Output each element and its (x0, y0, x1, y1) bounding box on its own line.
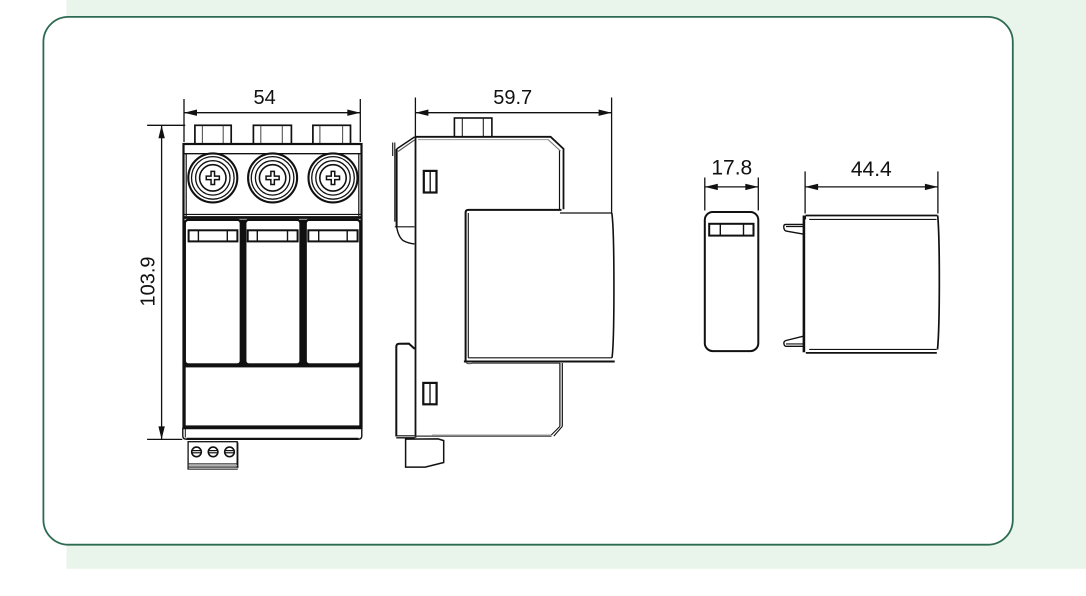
svg-text:17.8: 17.8 (711, 157, 752, 180)
svg-text:44.4: 44.4 (851, 158, 892, 181)
svg-text:103.9: 103.9 (138, 256, 160, 306)
svg-text:54: 54 (253, 87, 275, 109)
svg-text:59.7: 59.7 (493, 87, 532, 109)
